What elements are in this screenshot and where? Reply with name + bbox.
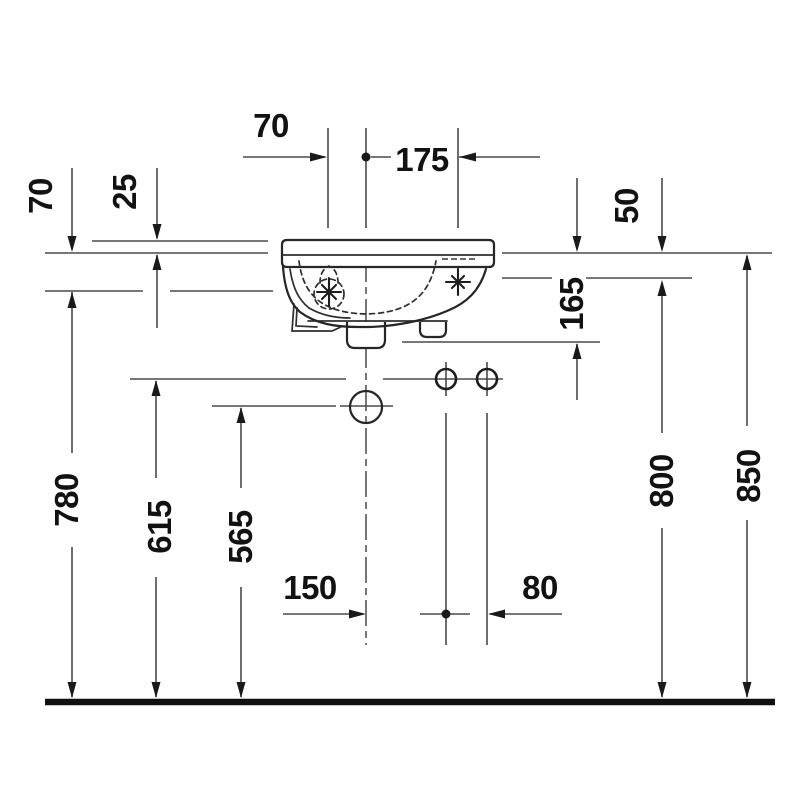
- taphole-right-marker-icon: [446, 269, 470, 295]
- dim-label-800: 800: [643, 454, 680, 508]
- dim-label-top-70: 70: [253, 107, 289, 144]
- dim-label-25: 25: [106, 174, 143, 210]
- dim-label-615: 615: [141, 500, 178, 554]
- basin-bracket-right: [420, 322, 446, 337]
- dim-label-80: 80: [522, 569, 558, 606]
- dim-label-50: 50: [608, 188, 645, 224]
- drawing-page: 70 175 70 25 50 165 780 615 565 150 80 8…: [0, 0, 800, 800]
- basin-rim: [282, 240, 494, 267]
- dim-dot-fixing: [442, 610, 451, 619]
- dim-label-165: 165: [553, 277, 590, 331]
- reference-lines: [45, 128, 772, 697]
- basin-figure: [282, 240, 497, 423]
- dim-dot-centerline: [362, 153, 371, 162]
- dim-label-left-70: 70: [22, 178, 59, 214]
- dim-label-175: 175: [395, 141, 449, 178]
- dimension-labels: 70 175 70 25 50 165 780 615 565 150 80 8…: [22, 107, 767, 606]
- dim-label-780: 780: [48, 473, 85, 527]
- dim-label-850: 850: [730, 449, 767, 503]
- technical-drawing: 70 175 70 25 50 165 780 615 565 150 80 8…: [0, 0, 800, 800]
- dim-label-565: 565: [222, 510, 259, 564]
- dimension-arrows: [68, 153, 752, 699]
- bowl-hidden-outline: [299, 261, 436, 314]
- dim-label-150: 150: [283, 569, 337, 606]
